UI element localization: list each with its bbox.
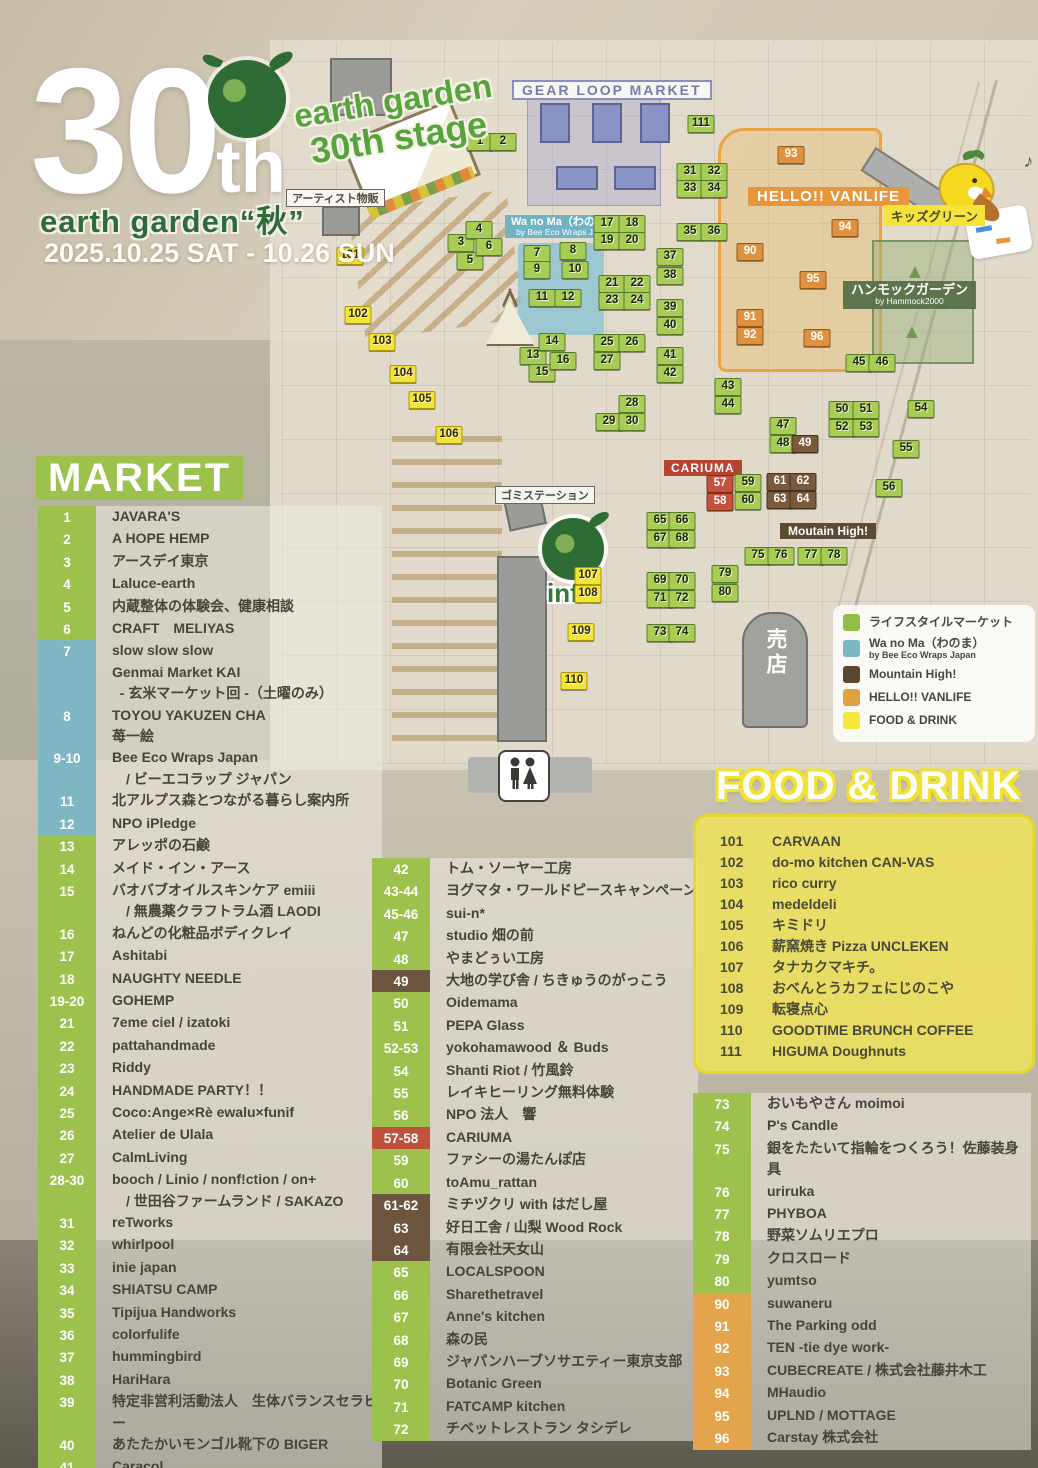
- list-item: 42トム・ソーヤー工房: [372, 858, 698, 880]
- booth-name: 大地の学び舎 / ちきゅうのがっこう: [430, 970, 698, 992]
- map-marker-46: 46: [869, 354, 896, 372]
- booth-name: クロスロード: [751, 1248, 1031, 1270]
- list-item: 111HIGUMA Doughnuts: [702, 1041, 1026, 1062]
- list-item: 38HariHara: [38, 1369, 382, 1391]
- booth-name: JAVARA'S: [96, 506, 382, 528]
- booth-name: おいもやさん moimoi: [751, 1093, 1031, 1115]
- booth-number: 49: [372, 970, 430, 992]
- list-item: 11北アルプス森とつながる暮らし案内所: [38, 790, 382, 812]
- booth-name: P's Candle: [751, 1115, 1031, 1137]
- list-item: 105キミドリ: [702, 915, 1026, 936]
- map-marker-59: 59: [735, 474, 762, 492]
- map-marker-19: 19: [594, 232, 621, 250]
- map-marker-28: 28: [619, 395, 646, 413]
- legend-item: Wa no Ma（わのま）by Bee Eco Wraps Japan: [843, 637, 1025, 660]
- list-item: 19-20GOHEMP: [38, 990, 382, 1012]
- booth-name: slow slow slow Genmai Market KAI - 玄米マーケ…: [96, 640, 382, 704]
- booth-name: yokohamawood ＆ Buds: [430, 1037, 698, 1059]
- booth-name: Coco:Ange×Rè ewalu×funif: [96, 1102, 382, 1124]
- map-marker-62: 62: [790, 473, 817, 491]
- booth-name: LOCALSPOON: [430, 1261, 698, 1283]
- booth-name: Shanti Riot / 竹風鈴: [430, 1060, 698, 1082]
- map-marker-24: 24: [624, 292, 651, 310]
- booth-number: 72: [372, 1418, 430, 1440]
- booth-number: 61-62: [372, 1194, 430, 1216]
- booth-name: キミドリ: [772, 915, 828, 936]
- booth-number: 68: [372, 1329, 430, 1351]
- booth-number: 78: [693, 1225, 751, 1247]
- map-marker-31: 31: [677, 163, 704, 181]
- list-item: 65LOCALSPOON: [372, 1261, 698, 1283]
- map-marker-57: 57: [707, 475, 734, 493]
- booth-name: sui-n*: [430, 903, 698, 925]
- list-item: 217eme ciel / izatoki: [38, 1012, 382, 1034]
- booth-name: TOYOU YAKUZEN CHA 苺一絵: [96, 705, 382, 748]
- legend-item: Mountain High!: [843, 666, 1025, 683]
- list-item: 78野菜ソムリエプロ: [693, 1225, 1031, 1247]
- booth-name: CUBECREATE / 株式会社藤井木工: [751, 1360, 1031, 1382]
- map-marker-30: 30: [619, 413, 646, 431]
- list-item: 76uriruka: [693, 1181, 1031, 1203]
- booth-number: 28-30: [38, 1169, 96, 1212]
- legend-swatch: [843, 614, 860, 631]
- booth-number: 90: [693, 1293, 751, 1315]
- booth-number: 109: [702, 999, 772, 1020]
- list-item: 36colorfulife: [38, 1324, 382, 1346]
- booth-number: 23: [38, 1057, 96, 1079]
- booth-number: 67: [372, 1306, 430, 1328]
- booth-number: 93: [693, 1360, 751, 1382]
- booth-name: The Parking odd: [751, 1315, 1031, 1337]
- map-marker-12: 12: [555, 289, 582, 307]
- list-item: 66Sharethetravel: [372, 1284, 698, 1306]
- booth-name: Ashitabi: [96, 945, 382, 967]
- list-item: 106薪窯焼き Pizza UNCLEKEN: [702, 936, 1026, 957]
- list-item: 79クロスロード: [693, 1248, 1031, 1270]
- booth-number: 24: [38, 1080, 96, 1102]
- booth-number: 54: [372, 1060, 430, 1082]
- booth-name: Atelier de Ulala: [96, 1124, 382, 1146]
- booth-number: 111: [702, 1041, 772, 1062]
- map-marker-78: 78: [821, 547, 848, 565]
- map-marker-44: 44: [715, 396, 742, 414]
- booth-name: GOHEMP: [96, 990, 382, 1012]
- booth-number: 71: [372, 1396, 430, 1418]
- booth-name: toAmu_rattan: [430, 1172, 698, 1194]
- booth-name: トム・ソーヤー工房: [430, 858, 698, 880]
- list-item: 59ファシーの湯たんぽ店: [372, 1149, 698, 1171]
- map-marker-104: 104: [390, 365, 417, 383]
- booth-name: HIGUMA Doughnuts: [772, 1041, 906, 1062]
- list-item: 47studio 畑の前: [372, 925, 698, 947]
- booth-number: 95: [693, 1405, 751, 1427]
- list-item: 72チベットレストラン タシデレ: [372, 1418, 698, 1440]
- booth-number: 2: [38, 528, 96, 550]
- map-marker-106: 106: [436, 426, 463, 444]
- booth-name: レイキヒーリング無料体験: [430, 1082, 698, 1104]
- booth-name: studio 畑の前: [430, 925, 698, 947]
- booth-name: colorfulife: [96, 1324, 382, 1346]
- map-marker-40: 40: [657, 317, 684, 335]
- list-item: 45-46sui-n*: [372, 903, 698, 925]
- booth-number: 8: [38, 705, 96, 748]
- map-marker-32: 32: [701, 163, 728, 181]
- list-item: 24HANDMADE PARTY！！: [38, 1080, 382, 1102]
- list-item: 96Carstay 株式会社: [693, 1427, 1031, 1449]
- earth-garden-logo-icon: [208, 60, 286, 138]
- list-item: 74P's Candle: [693, 1115, 1031, 1137]
- booth-name: 野菜ソムリエプロ: [751, 1225, 1031, 1247]
- list-item: 70Botanic Green: [372, 1373, 698, 1395]
- map-marker-93: 93: [778, 146, 805, 164]
- map-marker-37: 37: [657, 248, 684, 266]
- map-marker-55: 55: [893, 440, 920, 458]
- map-marker-35: 35: [677, 223, 704, 241]
- booth-name: inie japan: [96, 1257, 382, 1279]
- booth-name: アレッポの石鹸: [96, 835, 382, 857]
- map-marker-34: 34: [701, 180, 728, 198]
- list-item: 25Coco:Ange×Rè ewalu×funif: [38, 1102, 382, 1124]
- map-marker-47: 47: [770, 417, 797, 435]
- map-marker-80: 80: [712, 584, 739, 602]
- booth-name: Carstay 株式会社: [751, 1427, 1031, 1449]
- booth-number: 4: [38, 573, 96, 595]
- list-item: 104medeldeli: [702, 894, 1026, 915]
- booth-number: 77: [693, 1203, 751, 1225]
- booth-name: PHYBOA: [751, 1203, 1031, 1225]
- list-item: 22pattahandmade: [38, 1035, 382, 1057]
- list-item: 50Oidemama: [372, 992, 698, 1014]
- list-item: 28-30booch / Linio / nonf!ction / on+ / …: [38, 1169, 382, 1212]
- list-item: 15バオバブオイルスキンケア emiii / 無農薬クラフトラム酒 LAODI: [38, 880, 382, 923]
- map-marker-16: 16: [550, 352, 577, 370]
- booth-name: ねんどの化粧品ボディクレイ: [96, 923, 382, 945]
- list-item: 27CalmLiving: [38, 1147, 382, 1169]
- booth-number: 64: [372, 1239, 430, 1261]
- list-item: 109転寝点心: [702, 999, 1026, 1020]
- booth-number: 51: [372, 1015, 430, 1037]
- map-marker-33: 33: [677, 180, 704, 198]
- event-title: earth garden“秋”: [40, 196, 305, 241]
- list-item: 34SHIATSU CAMP: [38, 1279, 382, 1301]
- map-marker-4: 4: [466, 221, 493, 239]
- booth-name: reTworks: [96, 1212, 382, 1234]
- legend-item: ライフスタイルマーケット: [843, 614, 1025, 631]
- list-item: 108おべんとうカフェにじのこや: [702, 978, 1026, 999]
- booth-number: 19-20: [38, 990, 96, 1012]
- food-drink-box: 101CARVAAN102do-mo kitchen CAN-VAS103ric…: [693, 814, 1035, 1074]
- market-col2: 42トム・ソーヤー工房43-44ヨグマタ・ワールドピースキャンペーン45-46s…: [372, 858, 698, 1441]
- list-item: 8TOYOU YAKUZEN CHA 苺一絵: [38, 705, 382, 748]
- booth-number: 92: [693, 1337, 751, 1359]
- list-item: 67Anne's kitchen: [372, 1306, 698, 1328]
- booth-number: 94: [693, 1382, 751, 1404]
- map-marker-20: 20: [619, 232, 646, 250]
- booth-number: 45-46: [372, 903, 430, 925]
- booth-number: 96: [693, 1427, 751, 1449]
- list-item: 61-62ミチヅクリ with はだし屋: [372, 1194, 698, 1216]
- list-item: 13アレッポの石鹸: [38, 835, 382, 857]
- map-marker-54: 54: [908, 400, 935, 418]
- list-item: 40あたたかいモンゴル靴下の BIGER: [38, 1434, 382, 1456]
- booth-name: 有限会社天女山: [430, 1239, 698, 1261]
- booth-name: GOODTIME BRUNCH COFFEE: [772, 1020, 973, 1041]
- list-item: 1JAVARA'S: [38, 506, 382, 528]
- booth-name: ファシーの湯たんぽ店: [430, 1149, 698, 1171]
- booth-number: 39: [38, 1391, 96, 1434]
- booth-name: hummingbird: [96, 1346, 382, 1368]
- booth-number: 59: [372, 1149, 430, 1171]
- booth-name: Caracol: [96, 1456, 382, 1468]
- legend-label: FOOD & DRINK: [869, 714, 957, 727]
- list-item: 93CUBECREATE / 株式会社藤井木工: [693, 1360, 1031, 1382]
- booth-number: 14: [38, 858, 96, 880]
- list-item: 73おいもやさん moimoi: [693, 1093, 1031, 1115]
- map-marker-8: 8: [560, 242, 587, 260]
- list-item: 43-44ヨグマタ・ワールドピースキャンペーン: [372, 880, 698, 902]
- list-item: 3アースデイ東京: [38, 551, 382, 573]
- booth-name: 北アルプス森とつながる暮らし案内所: [96, 790, 382, 812]
- legend-label: HELLO!! VANLIFE: [869, 691, 971, 704]
- list-item: 12NPO iPledge: [38, 813, 382, 835]
- map-marker-27: 27: [594, 352, 621, 370]
- list-item: 75銀をたたいて指輪をつくろう！佐藤装身具: [693, 1138, 1031, 1181]
- map-marker-38: 38: [657, 267, 684, 285]
- booth-name: Sharethetravel: [430, 1284, 698, 1306]
- booth-name: CalmLiving: [96, 1147, 382, 1169]
- booth-name: ミチヅクリ with はだし屋: [430, 1194, 698, 1216]
- map-marker-92: 92: [737, 327, 764, 345]
- map-marker-51: 51: [853, 401, 880, 419]
- map-marker-102: 102: [345, 306, 372, 324]
- list-item: 77PHYBOA: [693, 1203, 1031, 1225]
- list-item: 41Caracol: [38, 1456, 382, 1468]
- list-item: 94MHaudio: [693, 1382, 1031, 1404]
- map-marker-108: 108: [575, 585, 602, 603]
- booth-number: 33: [38, 1257, 96, 1279]
- booth-name: 7eme ciel / izatoki: [96, 1012, 382, 1034]
- map-marker-96: 96: [804, 329, 831, 347]
- booth-name: medeldeli: [772, 894, 837, 915]
- booth-name: MHaudio: [751, 1382, 1031, 1404]
- list-item: 4Laluce-earth: [38, 573, 382, 595]
- booth-number: 12: [38, 813, 96, 835]
- booth-name: 転寝点心: [772, 999, 828, 1020]
- booth-name: 銀をたたいて指輪をつくろう！佐藤装身具: [751, 1138, 1031, 1181]
- booth-name: whirlpool: [96, 1234, 382, 1256]
- map-marker-41: 41: [657, 347, 684, 365]
- booth-number: 7: [38, 640, 96, 704]
- legend-item: FOOD & DRINK: [843, 712, 1025, 729]
- booth-name: Oidemama: [430, 992, 698, 1014]
- booth-name: NPO 法人 響: [430, 1104, 698, 1126]
- map-marker-43: 43: [715, 378, 742, 396]
- booth-name: SHIATSU CAMP: [96, 1279, 382, 1301]
- list-item: 55レイキヒーリング無料体験: [372, 1082, 698, 1104]
- map-marker-66: 66: [669, 512, 696, 530]
- booth-number: 18: [38, 968, 96, 990]
- map-marker-70: 70: [669, 572, 696, 590]
- list-item: 49大地の学び舎 / ちきゅうのがっこう: [372, 970, 698, 992]
- map-marker-76: 76: [768, 547, 795, 565]
- market-col1: 1JAVARA'S2A HOPE HEMP3アースデイ東京4Laluce-ear…: [38, 506, 382, 1468]
- booth-name: チベットレストラン タシデレ: [430, 1418, 698, 1440]
- booth-number: 106: [702, 936, 772, 957]
- booth-name: PEPA Glass: [430, 1015, 698, 1037]
- booth-name: A HOPE HEMP: [96, 528, 382, 550]
- list-item: 52-53yokohamawood ＆ Buds: [372, 1037, 698, 1059]
- booth-number: 91: [693, 1315, 751, 1337]
- legend-swatch: [843, 640, 860, 657]
- list-item: 107タナカクマキチ。: [702, 957, 1026, 978]
- booth-number: 55: [372, 1082, 430, 1104]
- list-item: 5内蔵整体の体験会、健康相談: [38, 596, 382, 618]
- booth-number: 34: [38, 1279, 96, 1301]
- booth-number: 102: [702, 852, 772, 873]
- booth-number: 5: [38, 596, 96, 618]
- booth-number: 79: [693, 1248, 751, 1270]
- legend-swatch: [843, 712, 860, 729]
- booth-number: 25: [38, 1102, 96, 1124]
- list-item: 90suwaneru: [693, 1293, 1031, 1315]
- booth-name: CARVAAN: [772, 831, 841, 852]
- event-map-poster: ▲ ▲ ▲ 売店 info ♪ GEAR LOOP MARKET アーティスト物…: [0, 0, 1038, 1468]
- legend-label: Mountain High!: [869, 668, 956, 681]
- map-marker-39: 39: [657, 299, 684, 317]
- map-marker-58: 58: [707, 493, 734, 511]
- map-marker-14: 14: [539, 333, 566, 351]
- map-marker-36: 36: [701, 223, 728, 241]
- booth-number: 11: [38, 790, 96, 812]
- list-item: 57-58CARIUMA: [372, 1127, 698, 1149]
- booth-name: pattahandmade: [96, 1035, 382, 1057]
- map-marker-42: 42: [657, 365, 684, 383]
- map-marker-110: 110: [561, 672, 588, 690]
- map-marker-22: 22: [624, 275, 651, 293]
- booth-number: 47: [372, 925, 430, 947]
- booth-number: 104: [702, 894, 772, 915]
- map-marker-60: 60: [735, 492, 762, 510]
- booth-name: ヨグマタ・ワールドピースキャンペーン: [430, 880, 698, 902]
- booth-number: 103: [702, 873, 772, 894]
- map-marker-64: 64: [790, 491, 817, 509]
- booth-name: do-mo kitchen CAN-VAS: [772, 852, 934, 873]
- map-marker-11: 11: [529, 289, 556, 307]
- list-item: 71FATCAMP kitchen: [372, 1396, 698, 1418]
- list-item: 95UPLND / MOTTAGE: [693, 1405, 1031, 1427]
- event-dates: 2025.10.25 SAT - 10.26 SUN: [44, 238, 395, 269]
- map-marker-18: 18: [619, 215, 646, 233]
- booth-number: 31: [38, 1212, 96, 1234]
- booth-name: やまどぅい工房: [430, 948, 698, 970]
- list-item: 7slow slow slow Genmai Market KAI - 玄米マー…: [38, 640, 382, 704]
- map-marker-109: 109: [568, 623, 595, 641]
- list-item: 68森の民: [372, 1329, 698, 1351]
- booth-name: NPO iPledge: [96, 813, 382, 835]
- booth-number: 69: [372, 1351, 430, 1373]
- map-marker-25: 25: [594, 334, 621, 352]
- map-marker-107: 107: [575, 567, 602, 585]
- booth-number: 56: [372, 1104, 430, 1126]
- booth-name: HariHara: [96, 1369, 382, 1391]
- booth-name: 内蔵整体の体験会、健康相談: [96, 596, 382, 618]
- booth-number: 21: [38, 1012, 96, 1034]
- map-marker-53: 53: [853, 419, 880, 437]
- map-marker-90: 90: [737, 243, 764, 261]
- list-item: 6CRAFT MELIYAS: [38, 618, 382, 640]
- map-marker-50: 50: [829, 401, 856, 419]
- map-marker-68: 68: [669, 530, 696, 548]
- booth-name: Riddy: [96, 1057, 382, 1079]
- map-marker-94: 94: [832, 219, 859, 237]
- booth-name: あたたかいモンゴル靴下の BIGER: [96, 1434, 382, 1456]
- map-legend: ライフスタイルマーケットWa no Ma（わのま）by Bee Eco Wrap…: [833, 605, 1035, 742]
- booth-number: 42: [372, 858, 430, 880]
- map-marker-72: 72: [669, 590, 696, 608]
- booth-name: NAUGHTY NEEDLE: [96, 968, 382, 990]
- list-item: 51PEPA Glass: [372, 1015, 698, 1037]
- booth-name: Laluce-earth: [96, 573, 382, 595]
- list-item: 18NAUGHTY NEEDLE: [38, 968, 382, 990]
- list-item: 14メイド・イン・アース: [38, 858, 382, 880]
- list-item: 32whirlpool: [38, 1234, 382, 1256]
- market-section-title: MARKET: [36, 456, 243, 500]
- booth-number: 22: [38, 1035, 96, 1057]
- food-list: 101CARVAAN102do-mo kitchen CAN-VAS103ric…: [696, 817, 1032, 1062]
- list-item: 26Atelier de Ulala: [38, 1124, 382, 1146]
- market-col3: 73おいもやさん moimoi74P's Candle75銀をたたいて指輪をつく…: [693, 1093, 1031, 1450]
- booth-number: 1: [38, 506, 96, 528]
- booth-number: 32: [38, 1234, 96, 1256]
- booth-number: 75: [693, 1138, 751, 1181]
- booth-number: 43-44: [372, 880, 430, 902]
- booth-number: 70: [372, 1373, 430, 1395]
- booth-number: 17: [38, 945, 96, 967]
- list-item: 9-10Bee Eco Wraps Japan / ビーエコラップ ジャパン: [38, 747, 382, 790]
- booth-name: タナカクマキチ。: [772, 957, 883, 978]
- booth-name: CARIUMA: [430, 1127, 698, 1149]
- legend-item: HELLO!! VANLIFE: [843, 689, 1025, 706]
- map-marker-79: 79: [712, 565, 739, 583]
- food-drink-section-title: FOOD & DRINK: [716, 764, 1021, 809]
- booth-number: 66: [372, 1284, 430, 1306]
- list-item: 64有限会社天女山: [372, 1239, 698, 1261]
- map-marker-10: 10: [562, 261, 589, 279]
- list-item: 63好日工舎 / 山梨 Wood Rock: [372, 1217, 698, 1239]
- list-item: 48やまどぅい工房: [372, 948, 698, 970]
- booth-number: 48: [372, 948, 430, 970]
- booth-name: FATCAMP kitchen: [430, 1396, 698, 1418]
- booth-number: 38: [38, 1369, 96, 1391]
- map-marker-105: 105: [409, 391, 436, 409]
- booth-number: 27: [38, 1147, 96, 1169]
- list-item: 39特定非営利活動法人 生体バランスセラピー: [38, 1391, 382, 1434]
- booth-name: Botanic Green: [430, 1373, 698, 1395]
- map-marker-26: 26: [619, 334, 646, 352]
- map-marker-49: 49: [792, 435, 819, 453]
- booth-number: 41: [38, 1456, 96, 1468]
- booth-number: 26: [38, 1124, 96, 1146]
- map-marker-91: 91: [737, 309, 764, 327]
- booth-name: 特定非営利活動法人 生体バランスセラピー: [96, 1391, 382, 1434]
- booth-number: 57-58: [372, 1127, 430, 1149]
- booth-number: 3: [38, 551, 96, 573]
- booth-number: 60: [372, 1172, 430, 1194]
- booth-number: 65: [372, 1261, 430, 1283]
- booth-number: 101: [702, 831, 772, 852]
- booth-number: 9-10: [38, 747, 96, 790]
- list-item: 2A HOPE HEMP: [38, 528, 382, 550]
